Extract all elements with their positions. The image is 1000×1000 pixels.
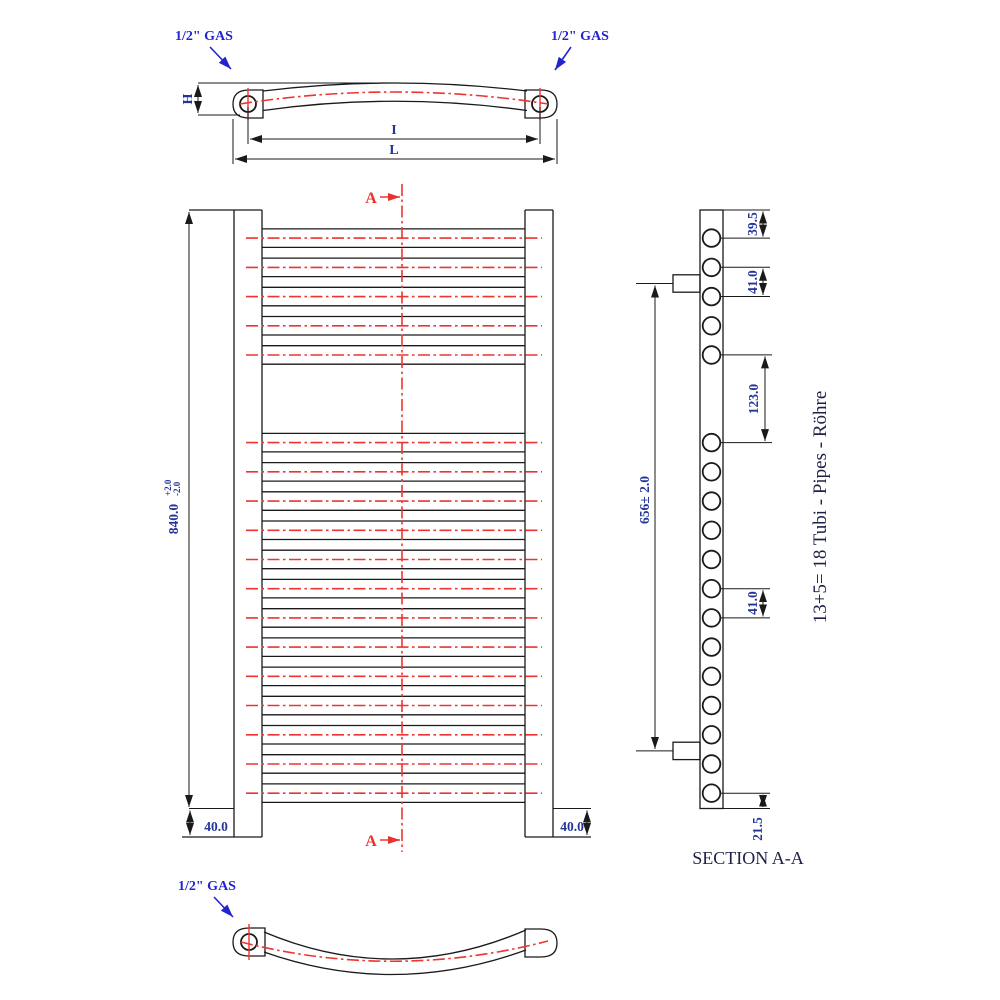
pitch-lower-value: 41.0 bbox=[745, 591, 760, 615]
top-view-tube-bottom-edge bbox=[263, 101, 527, 110]
pitch-upper-value: 41.0 bbox=[745, 270, 760, 294]
gas-label-bottom: 1/2" GAS bbox=[178, 879, 236, 894]
section-tube-circle bbox=[703, 668, 721, 686]
gas-label-top-left: 1/2" GAS bbox=[175, 29, 233, 44]
top-view-tube-top-edge bbox=[263, 83, 527, 91]
section-marker-bottom: A bbox=[365, 833, 377, 850]
section-view: 656± 2.0 39.5 41.0 123.0 41.0 21.5 SECTI… bbox=[636, 210, 831, 868]
section-tube-circle bbox=[703, 755, 721, 773]
section-tube-circle bbox=[703, 522, 721, 540]
section-tube-circle bbox=[703, 259, 721, 277]
section-tube-circle bbox=[703, 434, 721, 452]
section-tube-circle bbox=[703, 726, 721, 744]
height-dim-value: 840.0 bbox=[166, 504, 181, 535]
top-view: H I L 1/2" GAS 1/2" GAS bbox=[175, 29, 609, 164]
tube-count-note: 13+5= 18 Tubi - Pipes - Röhre bbox=[810, 391, 831, 624]
section-tube-circle bbox=[703, 580, 721, 598]
front-view: 840.0 +2.0 -2.0 40.0 40.0 A A bbox=[163, 184, 591, 852]
section-tube-circle bbox=[703, 463, 721, 481]
bottom-view: 1/2" GAS bbox=[178, 879, 557, 975]
height-dim-tolerance: +2.0 -2.0 bbox=[163, 479, 182, 496]
right-bottom-ext-value: 40.0 bbox=[560, 819, 584, 834]
l-dim-label: L bbox=[389, 143, 398, 158]
first-tube-offset-value: 39.5 bbox=[745, 212, 760, 236]
section-tube-circle bbox=[703, 697, 721, 715]
section-tube-circle bbox=[703, 288, 721, 306]
section-title: SECTION A-A bbox=[692, 848, 804, 868]
gas-arrow-bottom bbox=[214, 897, 233, 917]
section-marker-top: A bbox=[365, 190, 377, 207]
technical-drawing-canvas: H I L 1/2" GAS 1/2" GAS 840.0 bbox=[0, 0, 1000, 1000]
section-tube-circle bbox=[703, 317, 721, 335]
group-gap-value: 123.0 bbox=[746, 384, 761, 415]
last-tube-offset-value: 21.5 bbox=[750, 817, 765, 841]
front-tube-array bbox=[246, 229, 542, 803]
section-tube-circle bbox=[703, 492, 721, 510]
top-view-right-fitting bbox=[525, 90, 557, 118]
tolerance-minus: -2.0 bbox=[172, 481, 182, 496]
section-tube-circle bbox=[703, 551, 721, 569]
section-tube-circle bbox=[703, 229, 721, 247]
section-tube-circle bbox=[703, 784, 721, 802]
h-dim-label: H bbox=[181, 93, 196, 104]
section-tube-circle bbox=[703, 609, 721, 627]
left-bottom-ext-value: 40.0 bbox=[204, 819, 228, 834]
section-tube-circle bbox=[703, 638, 721, 656]
bottom-view-tube-top-edge bbox=[264, 930, 526, 959]
i-dim-label: I bbox=[391, 123, 396, 138]
section-tube-circles bbox=[703, 229, 721, 802]
lower-wall-bracket bbox=[673, 742, 700, 759]
top-view-centerline bbox=[240, 92, 548, 104]
section-tube-circle bbox=[703, 346, 721, 364]
radiator-technical-drawing-page: H I L 1/2" GAS 1/2" GAS 840.0 bbox=[0, 0, 1000, 1000]
gas-arrow-top-left bbox=[210, 47, 231, 69]
upper-wall-bracket bbox=[673, 275, 700, 292]
bracket-span-value: 656± 2.0 bbox=[637, 476, 652, 524]
gas-label-top-right: 1/2" GAS bbox=[551, 29, 609, 44]
gas-arrow-top-right bbox=[555, 47, 571, 70]
